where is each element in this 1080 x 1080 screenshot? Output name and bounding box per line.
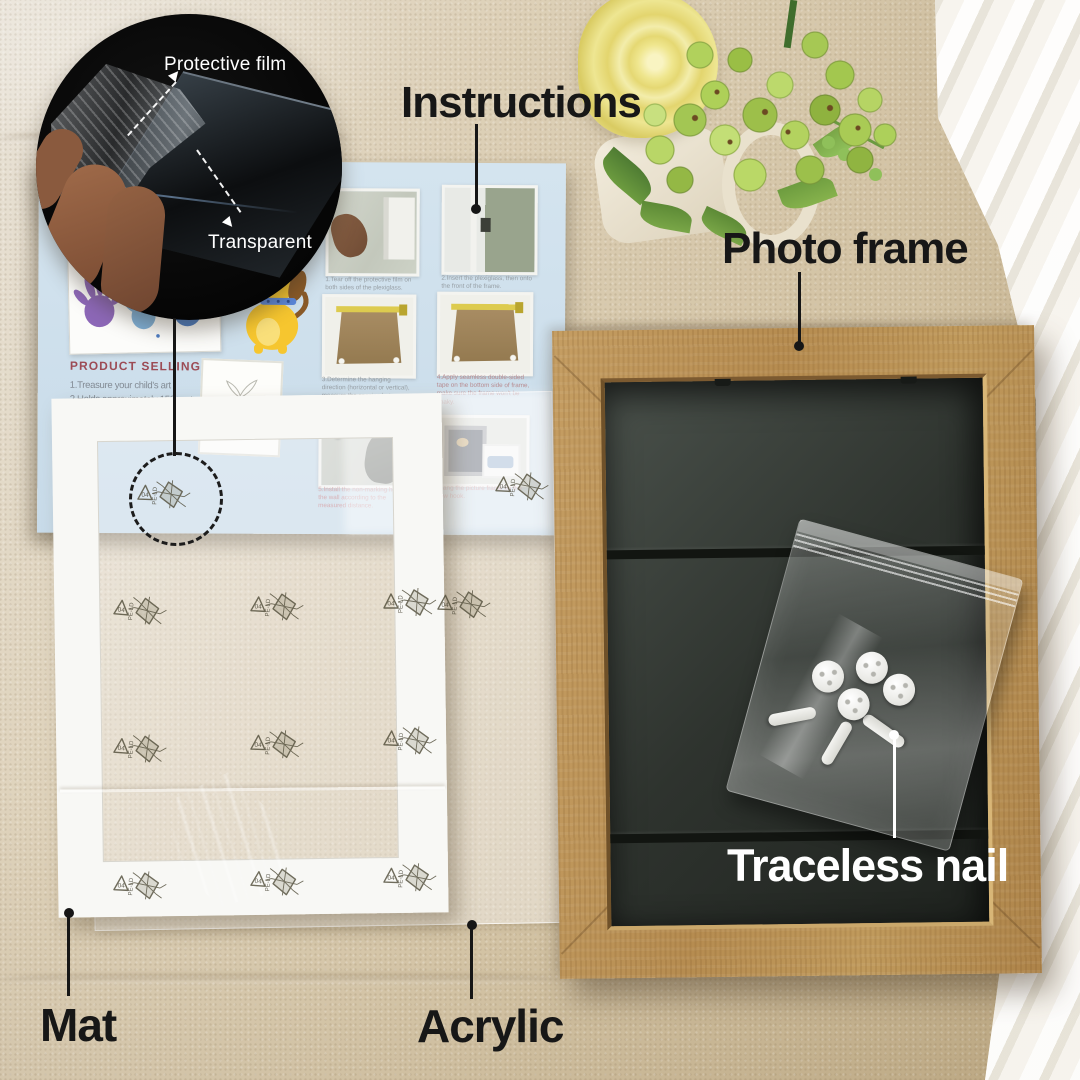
dashed-circle-annotation [129, 452, 223, 546]
step-photo-4 [437, 292, 533, 377]
ziplock-bag [725, 518, 1023, 851]
protective-film-pointer-line [173, 318, 176, 456]
traceless-nail-pointer-line [893, 738, 896, 838]
step-caption-2: 2.Insert the plexiglass, then onto the f… [441, 275, 535, 292]
mat-label: Mat [40, 998, 116, 1052]
step-caption-1: 1.Tear off the protective film on both s… [325, 276, 419, 293]
transparent-label: Transparent [208, 232, 312, 254]
green-berries-cluster [620, 0, 920, 245]
finger [99, 184, 168, 317]
photo-frame-pointer-line [798, 272, 801, 344]
step-photo-3 [322, 294, 416, 378]
photo-frame-pointer-dot [794, 341, 804, 351]
acrylic-pointer-line [470, 929, 473, 999]
traceless-nail-head [879, 670, 918, 709]
traceless-nail-label: Traceless nail [727, 840, 1008, 892]
acrylic-label: Acrylic [417, 999, 563, 1053]
instructions-pointer-line [475, 124, 478, 206]
mat-pointer-line [67, 916, 70, 996]
protective-film-label: Protective film [164, 54, 286, 76]
couch-seam [0, 972, 560, 986]
frame-clip [715, 379, 731, 386]
photo-frame-label: Photo frame [722, 224, 968, 274]
selling-point-item: 1.Treasure your child's art [70, 379, 220, 394]
nail-stem [861, 712, 907, 750]
frame-clip [901, 377, 917, 384]
product-photo-scene: PRODUCT SELLING POINT 1.Treasure your ch… [0, 0, 1080, 1080]
step-photo-1 [325, 188, 419, 276]
step-photo-2 [441, 185, 537, 276]
instructions-pointer-dot [471, 204, 481, 214]
acrylic-closeup-inset: Protective film Transparent [36, 14, 342, 320]
instructions-label: Instructions [401, 78, 641, 128]
